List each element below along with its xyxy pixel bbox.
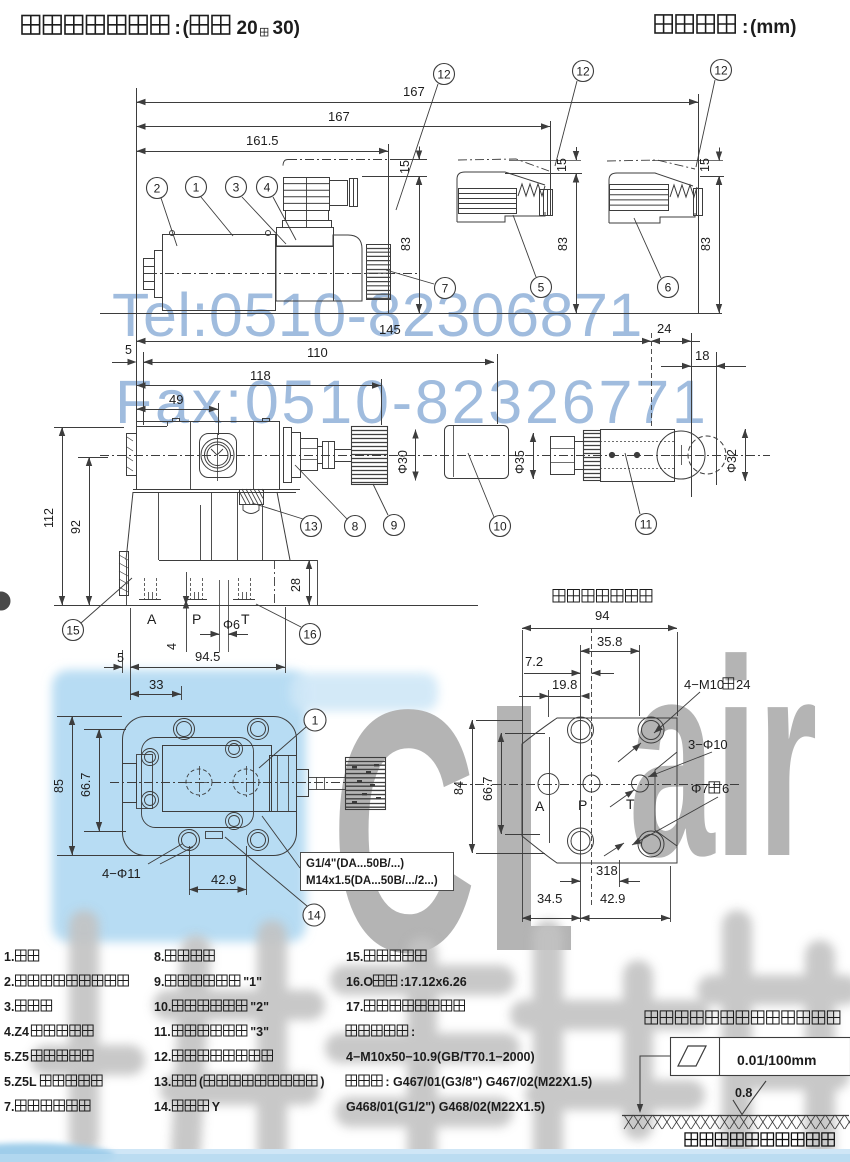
svg-text:Φ6: Φ6 [223, 618, 240, 632]
svg-text:85: 85 [52, 779, 66, 793]
svg-text:16: 16 [303, 627, 317, 641]
svg-text:83: 83 [399, 237, 413, 251]
svg-text:"2": "2" [250, 1000, 269, 1014]
svg-text:2: 2 [154, 181, 161, 195]
svg-text:4−M10: 4−M10 [684, 677, 724, 692]
svg-text:28: 28 [289, 578, 303, 592]
svg-text:Tel:0510-82306871: Tel:0510-82306871 [112, 281, 643, 349]
svg-text:G1/4"(DA...50B/...): G1/4"(DA...50B/...) [306, 858, 404, 870]
svg-text:): ) [320, 1075, 324, 1089]
svg-text:7.: 7. [4, 1100, 14, 1114]
svg-text:14: 14 [307, 908, 321, 922]
svg-text:18: 18 [695, 348, 709, 363]
svg-text:318: 318 [596, 863, 618, 878]
svg-text:24: 24 [736, 677, 750, 692]
svg-text:1: 1 [193, 180, 200, 194]
svg-text:T: T [241, 611, 250, 627]
svg-text:0.8: 0.8 [735, 1086, 752, 1100]
svg-text:66.7: 66.7 [481, 777, 495, 801]
svg-text::17.12x6.26: :17.12x6.26 [400, 975, 467, 989]
svg-text:Φ7: Φ7 [691, 781, 709, 796]
svg-text:15.: 15. [346, 950, 363, 964]
svg-text:11.: 11. [154, 1025, 171, 1039]
svg-text:4: 4 [264, 180, 271, 194]
svg-text:4.Z4: 4.Z4 [4, 1025, 29, 1039]
svg-text:33: 33 [149, 677, 163, 692]
svg-text:10: 10 [493, 519, 507, 533]
svg-text:7.2: 7.2 [525, 654, 543, 669]
svg-text:15: 15 [698, 158, 712, 172]
svg-text:P: P [192, 611, 201, 627]
svg-text:9: 9 [391, 518, 398, 532]
svg-text:"1": "1" [243, 975, 262, 989]
svg-text:13: 13 [304, 519, 318, 533]
svg-text:49: 49 [169, 392, 183, 407]
svg-text::: : [411, 1025, 415, 1039]
svg-text:83: 83 [699, 237, 713, 251]
svg-text:34.5: 34.5 [537, 891, 562, 906]
svg-text:167: 167 [328, 109, 350, 124]
svg-text:118: 118 [250, 368, 271, 383]
svg-text:M14x1.5(DA...50B/.../2...): M14x1.5(DA...50B/.../2...) [306, 875, 438, 887]
svg-text:air: air [629, 601, 817, 915]
svg-text:"3": "3" [250, 1025, 269, 1039]
svg-text:: G467/01(G3/8") G467/02(M22X1: : G467/01(G3/8") G467/02(M22X1.5) [385, 1075, 592, 1089]
svg-text:24: 24 [657, 321, 671, 336]
svg-text:12: 12 [576, 64, 590, 78]
svg-text::: : [742, 17, 748, 38]
svg-text:5: 5 [125, 343, 132, 357]
svg-text:12.: 12. [154, 1050, 171, 1064]
svg-text:84: 84 [452, 781, 466, 795]
svg-text:T: T [626, 796, 635, 812]
svg-text:112: 112 [42, 508, 56, 528]
svg-text:5: 5 [117, 651, 124, 665]
svg-text:16.O: 16.O [346, 975, 373, 989]
svg-text:167: 167 [403, 84, 425, 99]
svg-text:92: 92 [69, 520, 83, 534]
svg-text:11: 11 [640, 517, 653, 531]
svg-text:6: 6 [665, 280, 672, 294]
svg-text::: : [175, 18, 181, 39]
svg-text:8: 8 [352, 519, 359, 533]
svg-text:12: 12 [714, 63, 728, 77]
svg-text:0.01/100mm: 0.01/100mm [737, 1052, 816, 1068]
svg-text:2.: 2. [4, 975, 14, 989]
svg-text:A: A [535, 798, 545, 814]
svg-text:30): 30) [273, 18, 300, 39]
svg-text:10.: 10. [154, 1000, 171, 1014]
svg-text:14.: 14. [154, 1100, 171, 1114]
svg-text:3.: 3. [4, 1000, 14, 1014]
svg-text:83: 83 [556, 237, 570, 251]
svg-text:42.9: 42.9 [600, 891, 625, 906]
svg-text:A: A [147, 611, 157, 627]
svg-text:(: ( [183, 18, 190, 39]
svg-text:5: 5 [538, 280, 545, 294]
svg-text:Φ35: Φ35 [513, 450, 527, 474]
svg-text:5.Z5L: 5.Z5L [4, 1075, 37, 1089]
svg-text:110: 110 [307, 345, 328, 360]
svg-text:G468/01(G1/2") G468/02(M22X1.5: G468/01(G1/2") G468/02(M22X1.5) [346, 1100, 545, 1114]
svg-text:15: 15 [555, 158, 569, 172]
svg-text:19.8: 19.8 [552, 677, 577, 692]
svg-text:42.9: 42.9 [211, 872, 236, 887]
svg-text:3−Φ10: 3−Φ10 [688, 737, 728, 752]
svg-text:5.Z5: 5.Z5 [4, 1050, 29, 1064]
svg-text:1.: 1. [4, 950, 14, 964]
svg-text:17.: 17. [346, 1000, 363, 1014]
svg-text:3: 3 [233, 180, 240, 194]
svg-text:6: 6 [722, 781, 729, 796]
svg-text:7: 7 [442, 281, 449, 295]
svg-text:161.5: 161.5 [246, 133, 279, 148]
svg-text:12: 12 [437, 67, 451, 81]
svg-text:94.5: 94.5 [195, 649, 220, 664]
svg-text:4: 4 [165, 643, 179, 650]
svg-text:20: 20 [237, 18, 258, 39]
svg-text:15: 15 [66, 623, 80, 637]
svg-text:4−Φ11: 4−Φ11 [102, 866, 141, 881]
svg-text:9.: 9. [154, 975, 164, 989]
svg-text:8.: 8. [154, 950, 164, 964]
svg-text:145: 145 [379, 322, 401, 337]
svg-text:13.: 13. [154, 1075, 171, 1089]
svg-text:94: 94 [595, 608, 609, 623]
svg-text:(mm): (mm) [750, 17, 796, 38]
svg-text:1: 1 [312, 713, 319, 727]
svg-text:Y: Y [212, 1100, 221, 1114]
svg-text:Φ32: Φ32 [725, 449, 739, 473]
svg-text:Fax:0510-82326771: Fax:0510-82326771 [115, 368, 709, 436]
svg-text:Φ30: Φ30 [396, 450, 410, 474]
svg-text:35.8: 35.8 [597, 634, 622, 649]
svg-text:66.7: 66.7 [79, 773, 93, 797]
svg-text:P: P [578, 797, 587, 813]
svg-text:4−M10x50−10.9(GB/T70.1−2000): 4−M10x50−10.9(GB/T70.1−2000) [346, 1050, 535, 1064]
